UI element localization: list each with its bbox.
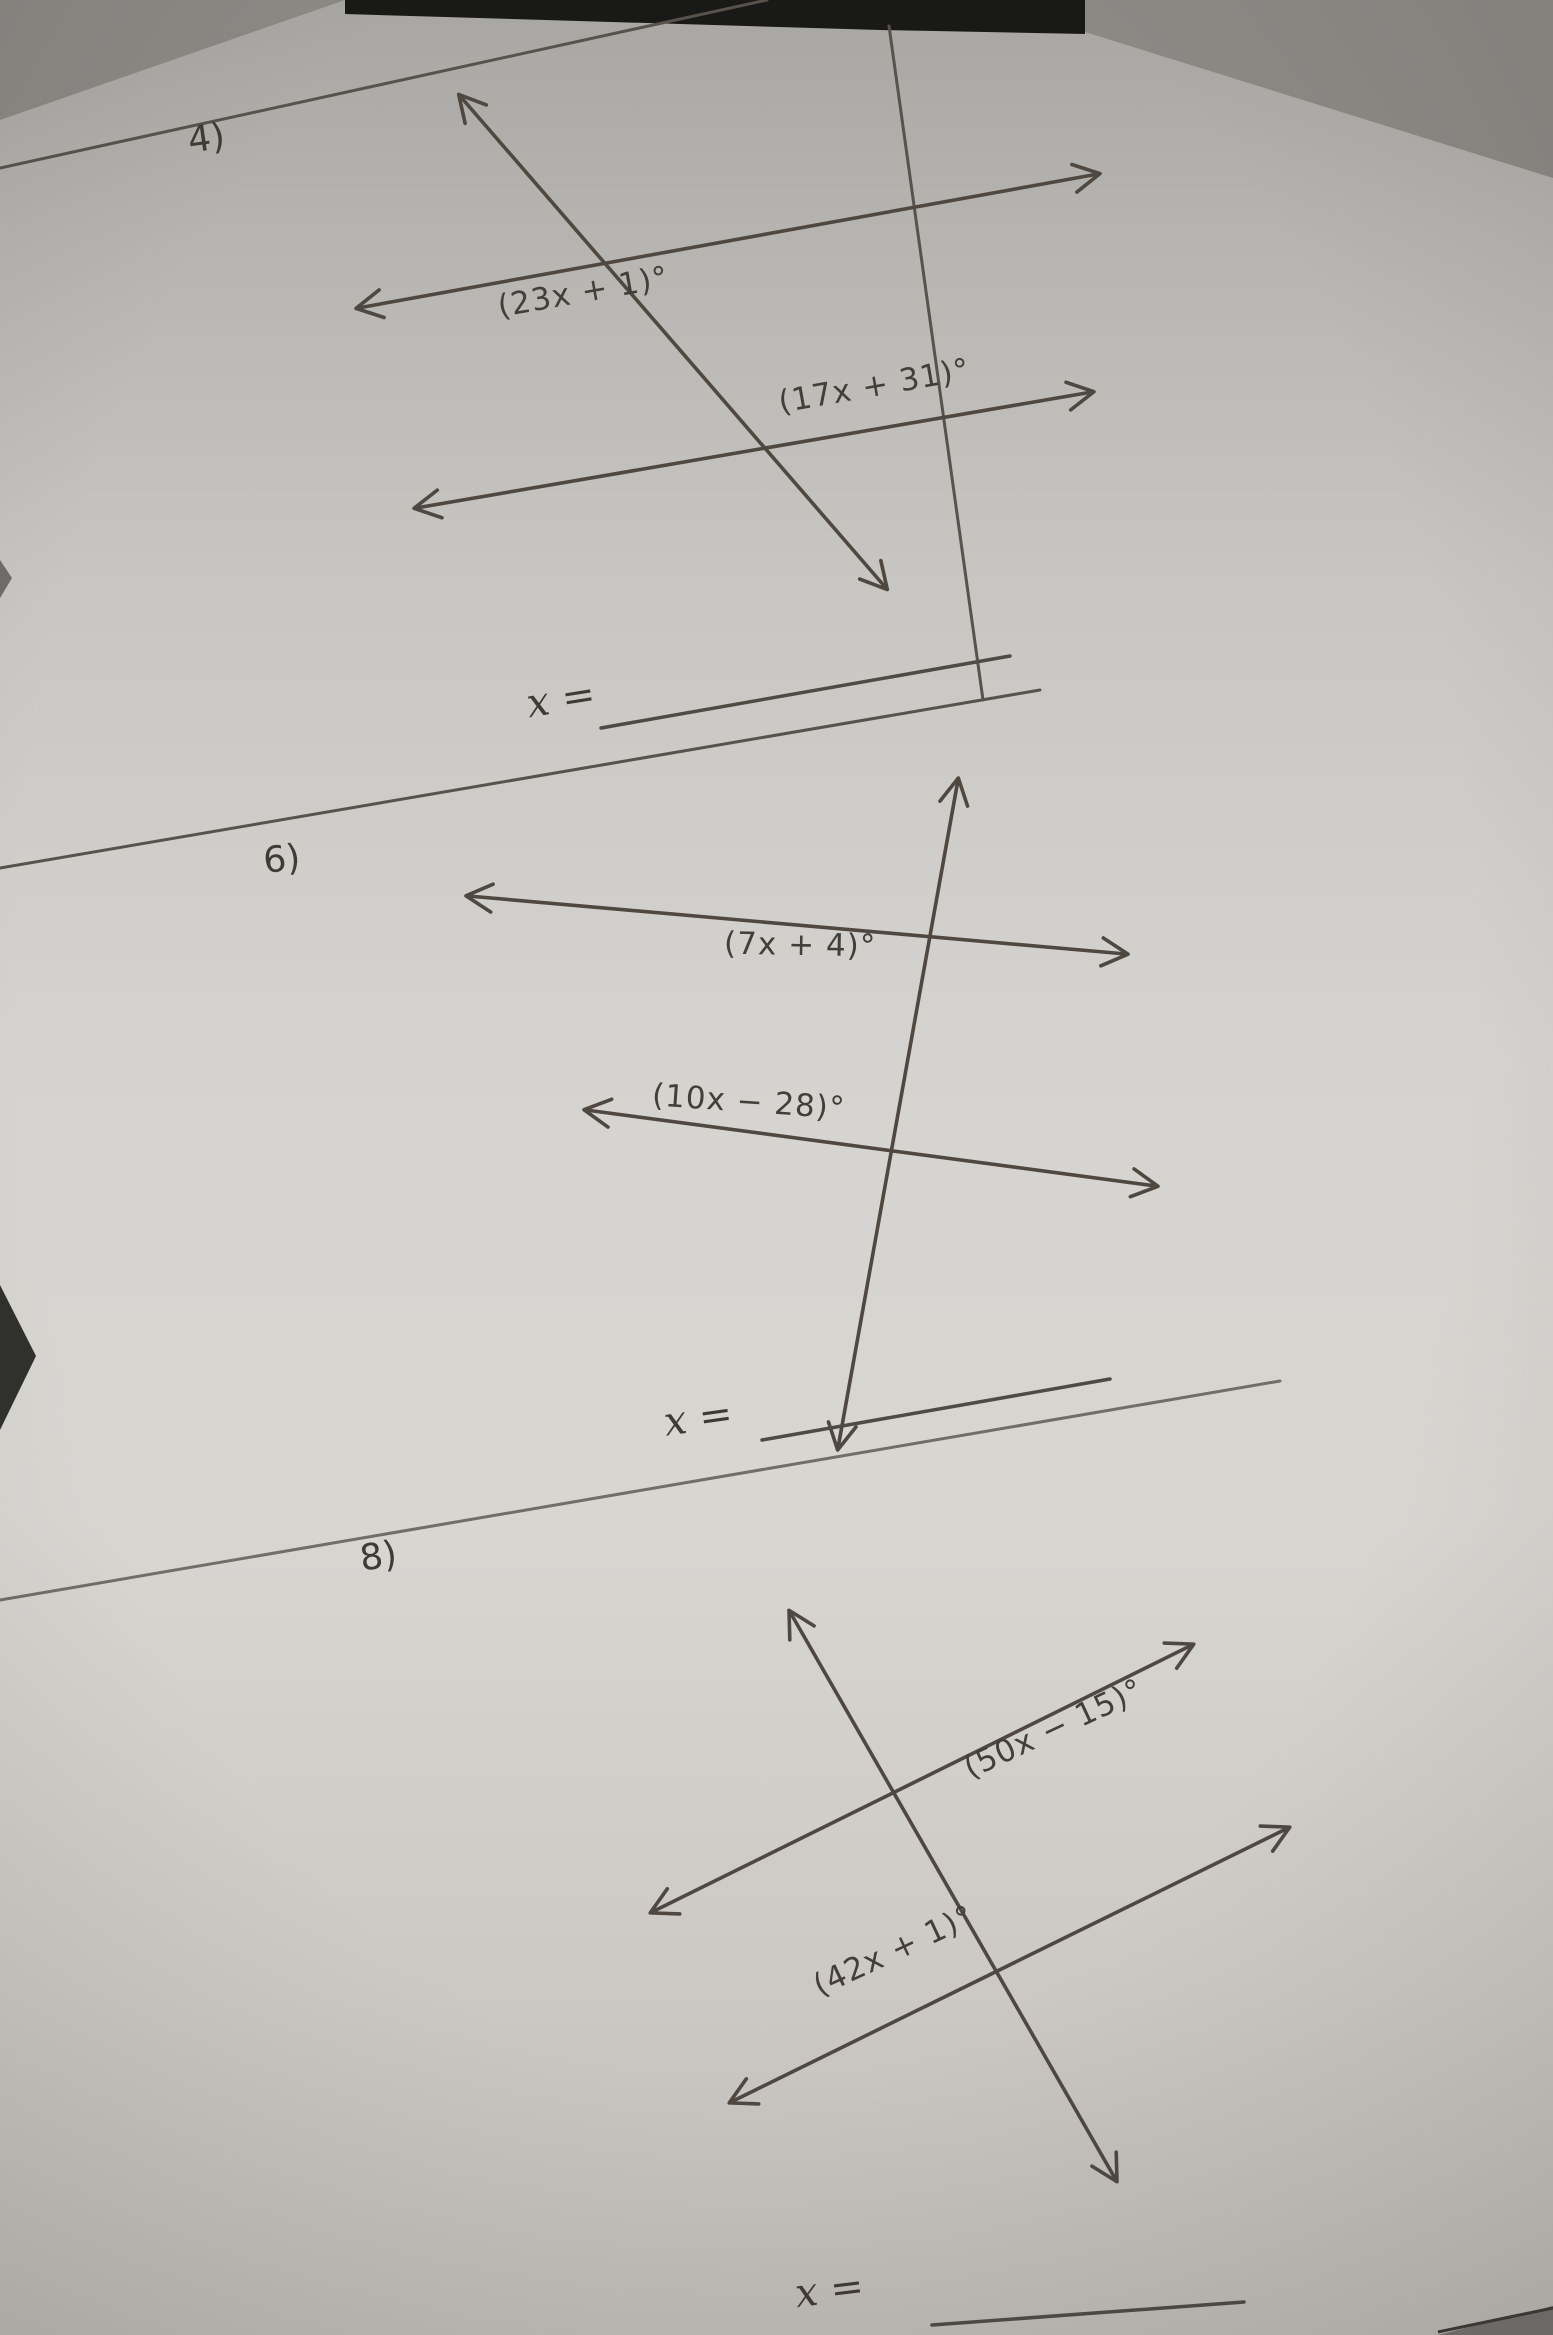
photo-vignette [0,0,1553,2335]
worksheet-photo: 4) (23x + 1)° (17x + 31)° x = 6) (7x + 4… [0,0,1553,2335]
